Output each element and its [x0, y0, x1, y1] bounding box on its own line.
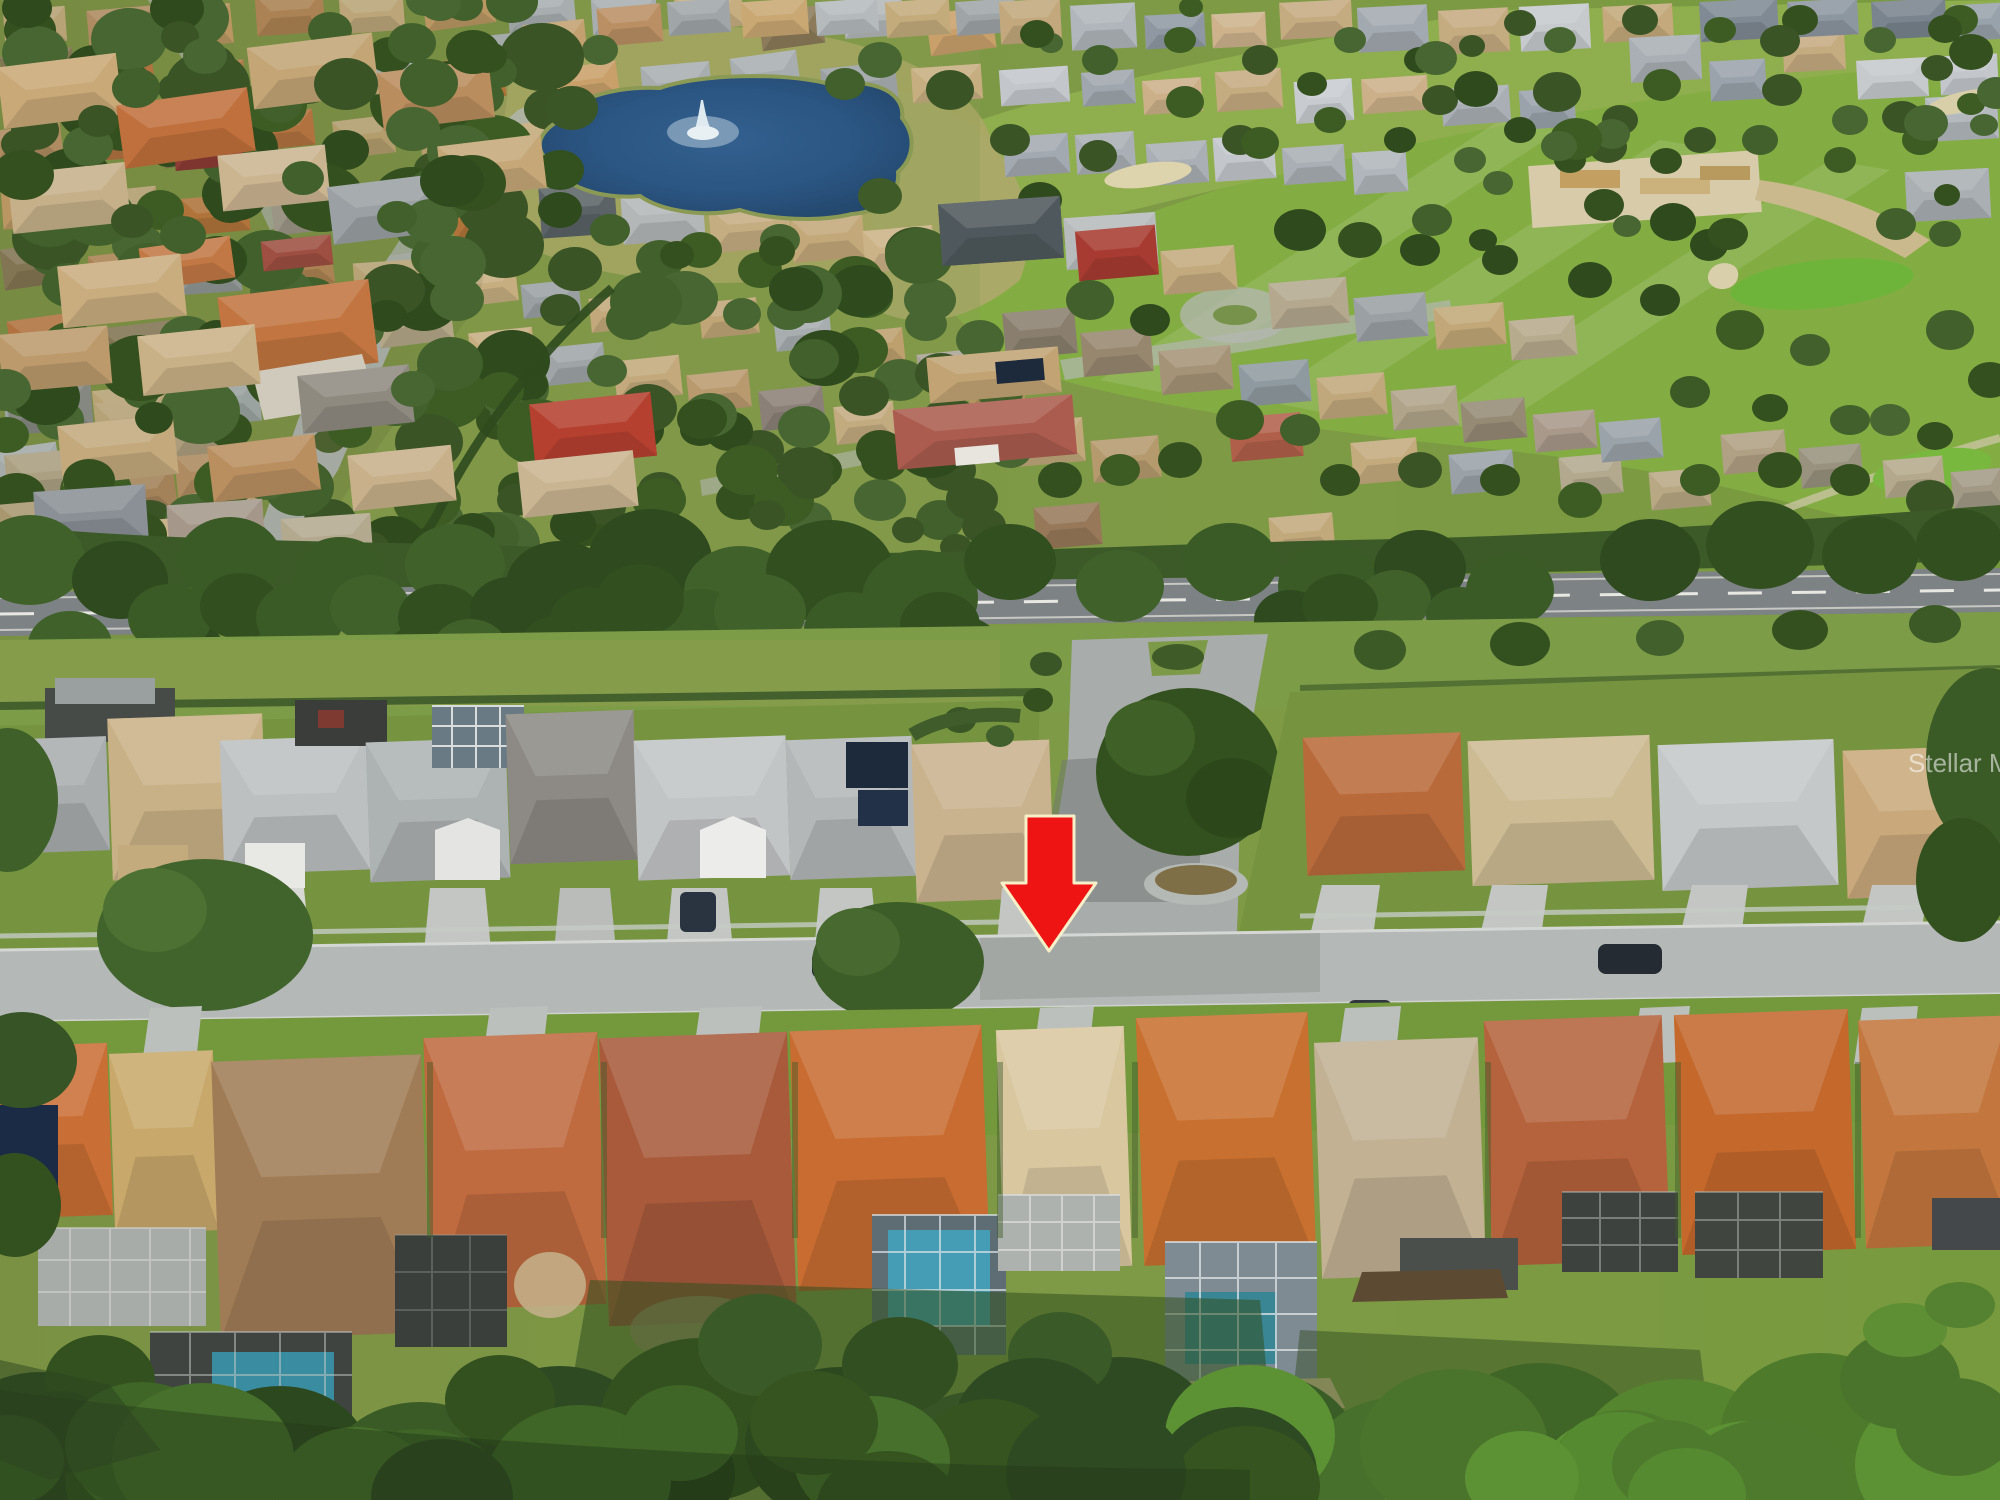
svg-text:Stellar MLS: Stellar MLS [1908, 748, 2000, 778]
